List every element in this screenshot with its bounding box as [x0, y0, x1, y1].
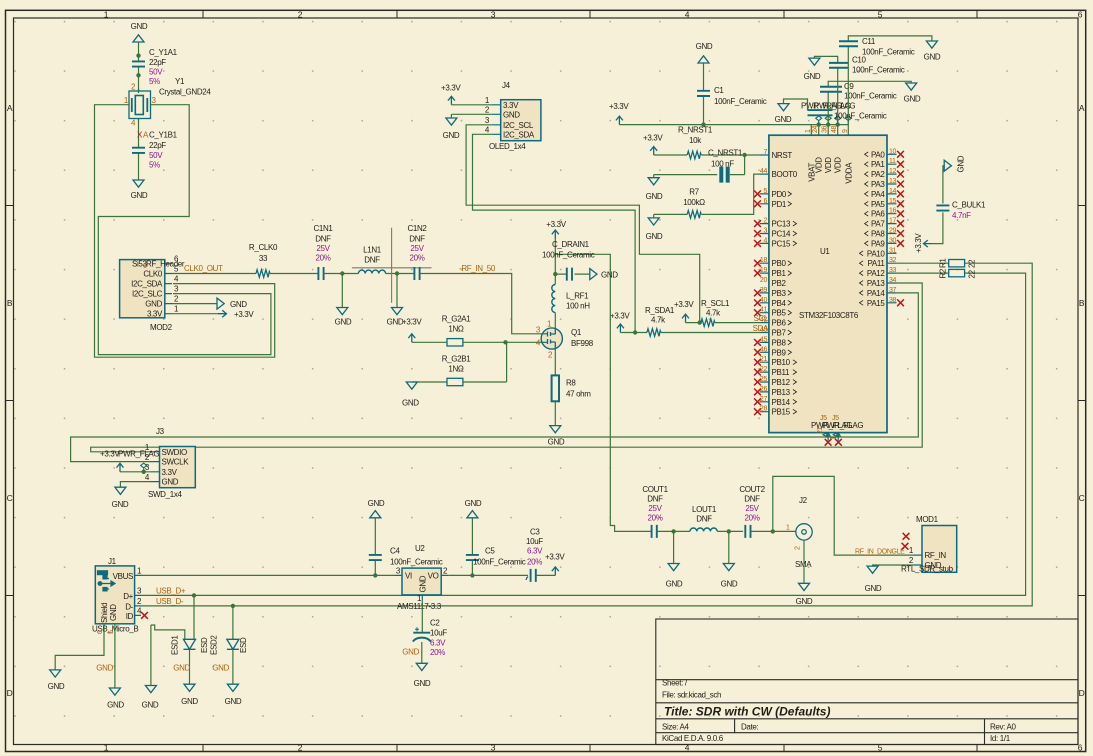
svg-text:DNF: DNF: [647, 495, 663, 504]
svg-text:6: 6: [97, 630, 104, 634]
svg-text:100nF_Ceramic: 100nF_Ceramic: [714, 97, 767, 106]
svg-text:Y1: Y1: [175, 77, 185, 86]
svg-text:PB12: PB12: [772, 378, 791, 387]
svg-text:3: 3: [491, 743, 496, 753]
svg-text:J1: J1: [108, 557, 117, 566]
svg-text:GND: GND: [109, 604, 118, 621]
svg-text:R2: R2: [939, 268, 948, 278]
svg-text:B: B: [7, 298, 13, 308]
svg-text:GND: GND: [107, 701, 124, 710]
svg-text:PB9: PB9: [772, 348, 787, 357]
svg-text:Crystal_GND24: Crystal_GND24: [159, 88, 211, 97]
svg-text:GND: GND: [865, 584, 882, 593]
svg-text:File: sdr.kicad_sch: File: sdr.kicad_sch: [662, 691, 721, 700]
svg-text:PA0: PA0: [871, 150, 885, 159]
svg-text:C_DRAIN1: C_DRAIN1: [552, 240, 590, 249]
svg-text:22pF: 22pF: [149, 141, 166, 150]
svg-text:3.3V: 3.3V: [503, 101, 519, 110]
svg-text:PB5: PB5: [772, 309, 787, 318]
svg-text:USB_D-: USB_D-: [156, 597, 184, 606]
svg-text:100nF_Ceramic: 100nF_Ceramic: [473, 558, 526, 567]
svg-text:GND: GND: [443, 131, 460, 140]
svg-text:PB15: PB15: [772, 408, 791, 417]
svg-text:3: 3: [763, 228, 767, 235]
svg-text:4: 4: [763, 237, 767, 244]
svg-text:AMS1117-3.3: AMS1117-3.3: [397, 602, 442, 611]
svg-text:2: 2: [298, 743, 303, 753]
svg-text:10: 10: [889, 148, 897, 155]
svg-text:I2C_SLC: I2C_SLC: [132, 290, 163, 299]
svg-text:DNF: DNF: [315, 235, 331, 244]
svg-text:MOD2: MOD2: [150, 323, 173, 332]
svg-text:C: C: [7, 493, 13, 503]
svg-text:5%: 5%: [149, 161, 160, 170]
svg-text:C9: C9: [844, 82, 854, 91]
svg-text:DNF: DNF: [409, 235, 425, 244]
svg-text:PC15: PC15: [772, 239, 792, 248]
svg-text:GND: GND: [173, 664, 190, 673]
svg-text:C1: C1: [714, 86, 724, 95]
svg-text:I2C_SDA: I2C_SDA: [131, 280, 163, 289]
svg-text:GND: GND: [666, 580, 683, 589]
svg-text:GND: GND: [796, 597, 813, 606]
svg-text:1: 1: [805, 129, 812, 133]
svg-text:10uF: 10uF: [430, 629, 447, 638]
svg-text:VDDA: VDDA: [844, 162, 853, 184]
svg-text:100nF_Ceramic: 100nF_Ceramic: [862, 48, 915, 57]
svg-text:J4: J4: [502, 81, 511, 90]
svg-text:VBUS: VBUS: [113, 572, 133, 581]
svg-text:20%: 20%: [648, 514, 663, 523]
svg-text:GND: GND: [414, 679, 431, 688]
svg-text:20%: 20%: [527, 558, 542, 567]
svg-text:PB8: PB8: [772, 338, 787, 347]
svg-text:+3.3V: +3.3V: [441, 84, 461, 93]
svg-text:21: 21: [817, 426, 824, 434]
svg-text:VDD: VDD: [824, 157, 833, 173]
svg-text:GND: GND: [804, 72, 821, 81]
svg-text:R_G2A1: R_G2A1: [442, 315, 471, 324]
svg-text:+3.3V: +3.3V: [402, 318, 422, 327]
svg-text:2: 2: [795, 546, 802, 550]
svg-text:C_NRST1: C_NRST1: [708, 149, 743, 158]
svg-text:J2: J2: [799, 496, 808, 505]
svg-text:A: A: [7, 103, 13, 113]
svg-text:PB3: PB3: [772, 289, 787, 298]
svg-text:4.7nF: 4.7nF: [952, 211, 971, 220]
svg-text:32: 32: [889, 257, 897, 264]
svg-text:A: A: [1079, 103, 1085, 113]
svg-text:C: C: [1079, 493, 1085, 503]
svg-text:C2: C2: [430, 619, 440, 628]
svg-text:R_CLK0: R_CLK0: [249, 243, 278, 252]
svg-text:PA14: PA14: [867, 289, 885, 298]
svg-text:R7: R7: [689, 188, 699, 197]
svg-text:PD0: PD0: [772, 190, 787, 199]
svg-text:PA5: PA5: [871, 200, 885, 209]
svg-text:GND: GND: [924, 53, 941, 62]
svg-text:GND: GND: [646, 232, 663, 241]
svg-text:100nF_Ceramic: 100nF_Ceramic: [834, 112, 887, 121]
svg-text:14: 14: [889, 188, 897, 195]
svg-text:48: 48: [831, 125, 838, 133]
svg-text:C5: C5: [485, 547, 495, 556]
svg-text:6: 6: [1078, 10, 1083, 20]
svg-text:+3.3V: +3.3V: [643, 134, 663, 143]
svg-text:C1N2: C1N2: [407, 224, 427, 233]
svg-text:6: 6: [763, 198, 767, 205]
svg-text:GND: GND: [419, 575, 428, 592]
svg-text:+3.3V: +3.3V: [914, 233, 923, 253]
svg-text:25V: 25V: [648, 504, 662, 513]
svg-text:C1N1: C1N1: [313, 224, 333, 233]
svg-text:38: 38: [889, 297, 897, 304]
svg-text:13: 13: [889, 178, 897, 185]
svg-text:C11: C11: [862, 37, 876, 46]
svg-text:30: 30: [889, 237, 897, 244]
svg-text:GND: GND: [96, 664, 113, 673]
svg-text:GND: GND: [181, 697, 198, 706]
svg-text:3.3V: 3.3V: [147, 310, 163, 319]
svg-text:15: 15: [889, 198, 897, 205]
svg-text:D: D: [1079, 688, 1085, 698]
svg-text:SWCLK: SWCLK: [162, 458, 190, 467]
svg-text:1NΩ: 1NΩ: [448, 325, 464, 334]
svg-text:L_RF1: L_RF1: [566, 292, 589, 301]
svg-text:4.7k: 4.7k: [706, 309, 721, 318]
svg-text:PB14: PB14: [772, 398, 791, 407]
svg-text:Rev: A0: Rev: A0: [990, 723, 1016, 732]
svg-text:ID: ID: [126, 612, 134, 621]
svg-text:5: 5: [763, 188, 767, 195]
svg-text:22: 22: [968, 269, 977, 278]
svg-text:ESD: ESD: [200, 637, 209, 653]
svg-text:Sheet: /: Sheet: /: [662, 679, 688, 688]
svg-text:PB13: PB13: [772, 388, 791, 397]
svg-text:R_SDA1: R_SDA1: [645, 306, 675, 315]
svg-text:33: 33: [889, 267, 897, 274]
svg-text:PWR_FLAG: PWR_FLAG: [118, 450, 159, 459]
svg-text:25V: 25V: [745, 504, 759, 513]
svg-text:GND: GND: [145, 300, 162, 309]
svg-text:BOOT0: BOOT0: [772, 170, 798, 179]
svg-text:GND: GND: [131, 22, 148, 31]
svg-text:Q1: Q1: [571, 328, 582, 337]
svg-text:22: 22: [968, 259, 977, 268]
svg-text:PA4: PA4: [871, 190, 885, 199]
svg-text:KiCad E.D.A. 9.0.6: KiCad E.D.A. 9.0.6: [662, 734, 724, 743]
svg-text:PA10: PA10: [867, 249, 885, 258]
svg-text:STM32F103C8T6: STM32F103C8T6: [799, 311, 859, 320]
svg-text:DNF: DNF: [744, 495, 760, 504]
svg-text:25V: 25V: [316, 244, 330, 253]
svg-text:J3: J3: [156, 427, 165, 436]
svg-text:100 nF: 100 nF: [711, 160, 734, 169]
svg-text:10uF: 10uF: [526, 537, 543, 546]
svg-text:3: 3: [491, 10, 496, 20]
svg-text:VDD: VDD: [834, 157, 843, 173]
svg-text:GND: GND: [904, 95, 921, 104]
svg-text:PA13: PA13: [867, 279, 885, 288]
svg-text:31: 31: [889, 247, 897, 254]
svg-text:20%: 20%: [430, 648, 445, 657]
svg-text:+3.3V: +3.3V: [609, 102, 629, 111]
svg-text:PA7: PA7: [871, 220, 885, 229]
svg-text:+3.3V: +3.3V: [234, 310, 254, 319]
svg-text:GND: GND: [402, 648, 419, 657]
svg-text:ESD2: ESD2: [210, 635, 219, 655]
svg-text:12: 12: [889, 168, 897, 175]
svg-text:GND: GND: [131, 191, 148, 200]
svg-text:100nF_Ceramic: 100nF_Ceramic: [542, 251, 595, 260]
svg-text:GND: GND: [775, 115, 792, 124]
svg-text:R8: R8: [566, 379, 576, 388]
svg-text:GND: GND: [696, 42, 713, 51]
svg-text:PA2: PA2: [871, 170, 885, 179]
svg-text:USB_D+: USB_D+: [156, 587, 186, 596]
svg-text:B: B: [1079, 298, 1085, 308]
svg-text:36: 36: [822, 125, 829, 133]
svg-text:RTL_SDR_stub: RTL_SDR_stub: [901, 565, 954, 574]
svg-text:GND: GND: [48, 682, 65, 691]
svg-text:Date:: Date:: [741, 723, 758, 732]
svg-text:1: 1: [786, 525, 790, 532]
svg-text:C_Y1B1: C_Y1B1: [149, 131, 178, 140]
svg-text:C_Y1A1: C_Y1A1: [149, 48, 178, 57]
svg-text:PB11: PB11: [772, 368, 790, 377]
svg-text:PA12: PA12: [867, 269, 885, 278]
svg-text:J5: J5: [820, 415, 827, 422]
svg-text:2: 2: [763, 218, 767, 225]
svg-text:Size: A4: Size: A4: [662, 723, 689, 732]
svg-text:PC13: PC13: [772, 220, 792, 229]
svg-text:PA11: PA11: [868, 259, 886, 268]
svg-text:PA1: PA1: [871, 160, 885, 169]
svg-text:4.7k: 4.7k: [651, 316, 666, 325]
svg-text:PA9: PA9: [871, 239, 885, 248]
svg-text:R_SCL1: R_SCL1: [701, 299, 730, 308]
svg-text:4: 4: [685, 10, 690, 20]
svg-text:I2C_SDA: I2C_SDA: [503, 130, 535, 139]
svg-text:GND: GND: [212, 664, 229, 673]
svg-text:PB7: PB7: [772, 329, 787, 338]
svg-text:29: 29: [889, 228, 897, 235]
svg-text:GND: GND: [368, 499, 385, 508]
svg-text:100nF_Ceramic: 100nF_Ceramic: [852, 66, 905, 75]
svg-text:CLK0: CLK0: [143, 270, 163, 279]
svg-text:L1N1: L1N1: [363, 246, 382, 255]
svg-text:7: 7: [763, 149, 767, 156]
svg-text:CLK0_OUT: CLK0_OUT: [184, 264, 223, 273]
svg-text:R_G2B1: R_G2B1: [442, 355, 471, 364]
svg-text:17: 17: [889, 218, 897, 225]
svg-text:2: 2: [298, 10, 303, 20]
svg-text:+3.3V: +3.3V: [610, 312, 630, 321]
svg-text:C3: C3: [530, 528, 540, 537]
svg-text:COUT1: COUT1: [642, 485, 668, 494]
svg-text:VO: VO: [428, 571, 439, 580]
svg-text:6: 6: [1078, 743, 1083, 753]
svg-text:D-: D-: [125, 602, 133, 611]
svg-text:R1: R1: [939, 258, 948, 268]
svg-text:U1: U1: [820, 247, 830, 256]
svg-text:PWR_FLAG: PWR_FLAG: [822, 421, 863, 430]
svg-text:J5: J5: [832, 415, 839, 422]
svg-text:11: 11: [889, 158, 896, 165]
svg-text:6.3V: 6.3V: [527, 547, 543, 556]
svg-text:1: 1: [104, 743, 109, 753]
svg-text:24: 24: [812, 125, 819, 133]
svg-text:-RF_IN_50: -RF_IN_50: [459, 264, 496, 273]
svg-text:GND: GND: [465, 499, 482, 508]
svg-text:RF_IN_DONGLE: RF_IN_DONGLE: [855, 549, 905, 556]
svg-text:50V: 50V: [149, 68, 163, 77]
svg-text:C10: C10: [852, 56, 867, 65]
svg-text:PB2: PB2: [772, 279, 787, 288]
svg-text:+3.3V: +3.3V: [546, 220, 566, 229]
svg-text:100nF_Ceramic: 100nF_Ceramic: [390, 558, 443, 567]
svg-text:ESD1: ESD1: [171, 635, 180, 655]
svg-text:SCL: SCL: [753, 314, 768, 323]
svg-text:PB1: PB1: [772, 269, 787, 278]
svg-text:BF998: BF998: [571, 339, 594, 348]
svg-text:3.3V: 3.3V: [162, 468, 178, 477]
svg-text:PA15: PA15: [867, 299, 885, 308]
svg-text:5: 5: [878, 10, 883, 20]
svg-text:20%: 20%: [316, 254, 331, 263]
svg-text:VI: VI: [405, 571, 412, 580]
svg-text:GND: GND: [721, 580, 738, 589]
svg-text:44: 44: [760, 168, 768, 175]
svg-text:50V: 50V: [149, 151, 163, 160]
svg-text:OLED_1x4: OLED_1x4: [489, 142, 526, 151]
svg-text:Id: 1/1: Id: 1/1: [990, 734, 1011, 743]
svg-text:PA8: PA8: [871, 230, 885, 239]
svg-text:GND: GND: [230, 300, 247, 309]
svg-text:MOD1: MOD1: [916, 515, 939, 524]
svg-text:SWDIO: SWDIO: [162, 448, 187, 457]
svg-text:U2: U2: [415, 544, 425, 553]
svg-text:PB0: PB0: [772, 259, 787, 268]
svg-text:6.3V: 6.3V: [430, 639, 446, 648]
svg-text:5%: 5%: [149, 77, 160, 86]
svg-text:37: 37: [889, 287, 897, 294]
svg-text:GND: GND: [601, 271, 618, 280]
svg-text:GND: GND: [162, 478, 179, 487]
svg-text:D+: D+: [123, 592, 133, 601]
svg-text:Title: SDR with CW (Defaults): Title: SDR with CW (Defaults): [664, 705, 830, 719]
svg-text:GND: GND: [548, 438, 565, 447]
svg-text:GND: GND: [957, 155, 966, 172]
svg-text:GND: GND: [142, 701, 159, 710]
svg-text:I2C_SCL: I2C_SCL: [503, 121, 534, 130]
svg-text:25V: 25V: [410, 244, 424, 253]
svg-text:GND: GND: [503, 110, 520, 119]
svg-text:1NΩ: 1NΩ: [448, 365, 464, 374]
svg-text:LOUT1: LOUT1: [692, 505, 717, 514]
svg-text:PC14: PC14: [772, 230, 792, 239]
svg-text:DNF: DNF: [696, 515, 712, 524]
svg-text:47 ohm: 47 ohm: [566, 390, 591, 399]
svg-text:34: 34: [889, 277, 897, 284]
svg-text:Shield: Shield: [100, 603, 109, 623]
svg-text:GND: GND: [402, 399, 419, 408]
svg-text:20%: 20%: [410, 254, 425, 263]
svg-text:PA3: PA3: [871, 180, 885, 189]
svg-text:33: 33: [259, 254, 268, 263]
svg-text:16: 16: [889, 208, 897, 215]
svg-text:22pF: 22pF: [149, 58, 166, 67]
svg-text:RF_IN: RF_IN: [925, 551, 947, 560]
svg-text:NRST: NRST: [772, 151, 793, 160]
svg-text:ESD: ESD: [239, 637, 248, 653]
svg-text:C_BULK1: C_BULK1: [952, 201, 986, 210]
svg-text:SWD_1x4: SWD_1x4: [148, 490, 182, 499]
svg-text:5: 5: [108, 630, 115, 634]
svg-text:100nF_Ceramic: 100nF_Ceramic: [844, 92, 897, 101]
svg-text:PB4: PB4: [772, 299, 787, 308]
svg-text:D: D: [7, 688, 13, 698]
svg-text:SDA: SDA: [753, 324, 769, 333]
svg-text:PB10: PB10: [772, 358, 791, 367]
svg-text:GND: GND: [112, 500, 129, 509]
svg-text:GND: GND: [335, 318, 352, 327]
svg-text:GND: GND: [225, 697, 242, 706]
svg-text:1: 1: [104, 10, 109, 20]
svg-text:+3.3V: +3.3V: [674, 300, 694, 309]
svg-text:R_NRST1: R_NRST1: [678, 126, 713, 135]
svg-text:PB6: PB6: [772, 319, 787, 328]
svg-text:10k: 10k: [689, 136, 702, 145]
svg-text:PD1: PD1: [772, 200, 787, 209]
svg-text:20: 20: [760, 277, 768, 284]
svg-text:GND: GND: [646, 192, 663, 201]
svg-text:+3.3V: +3.3V: [545, 553, 565, 562]
svg-text:100kΩ: 100kΩ: [683, 198, 705, 207]
svg-text:DNF: DNF: [364, 256, 380, 265]
svg-text:20%: 20%: [745, 514, 760, 523]
svg-text:C4: C4: [390, 547, 400, 556]
svg-text:VDD: VDD: [815, 157, 824, 173]
svg-text:COUT2: COUT2: [739, 485, 765, 494]
svg-text:PA6: PA6: [871, 210, 885, 219]
svg-text:100 nH: 100 nH: [566, 302, 590, 311]
svg-text:9: 9: [842, 129, 849, 133]
